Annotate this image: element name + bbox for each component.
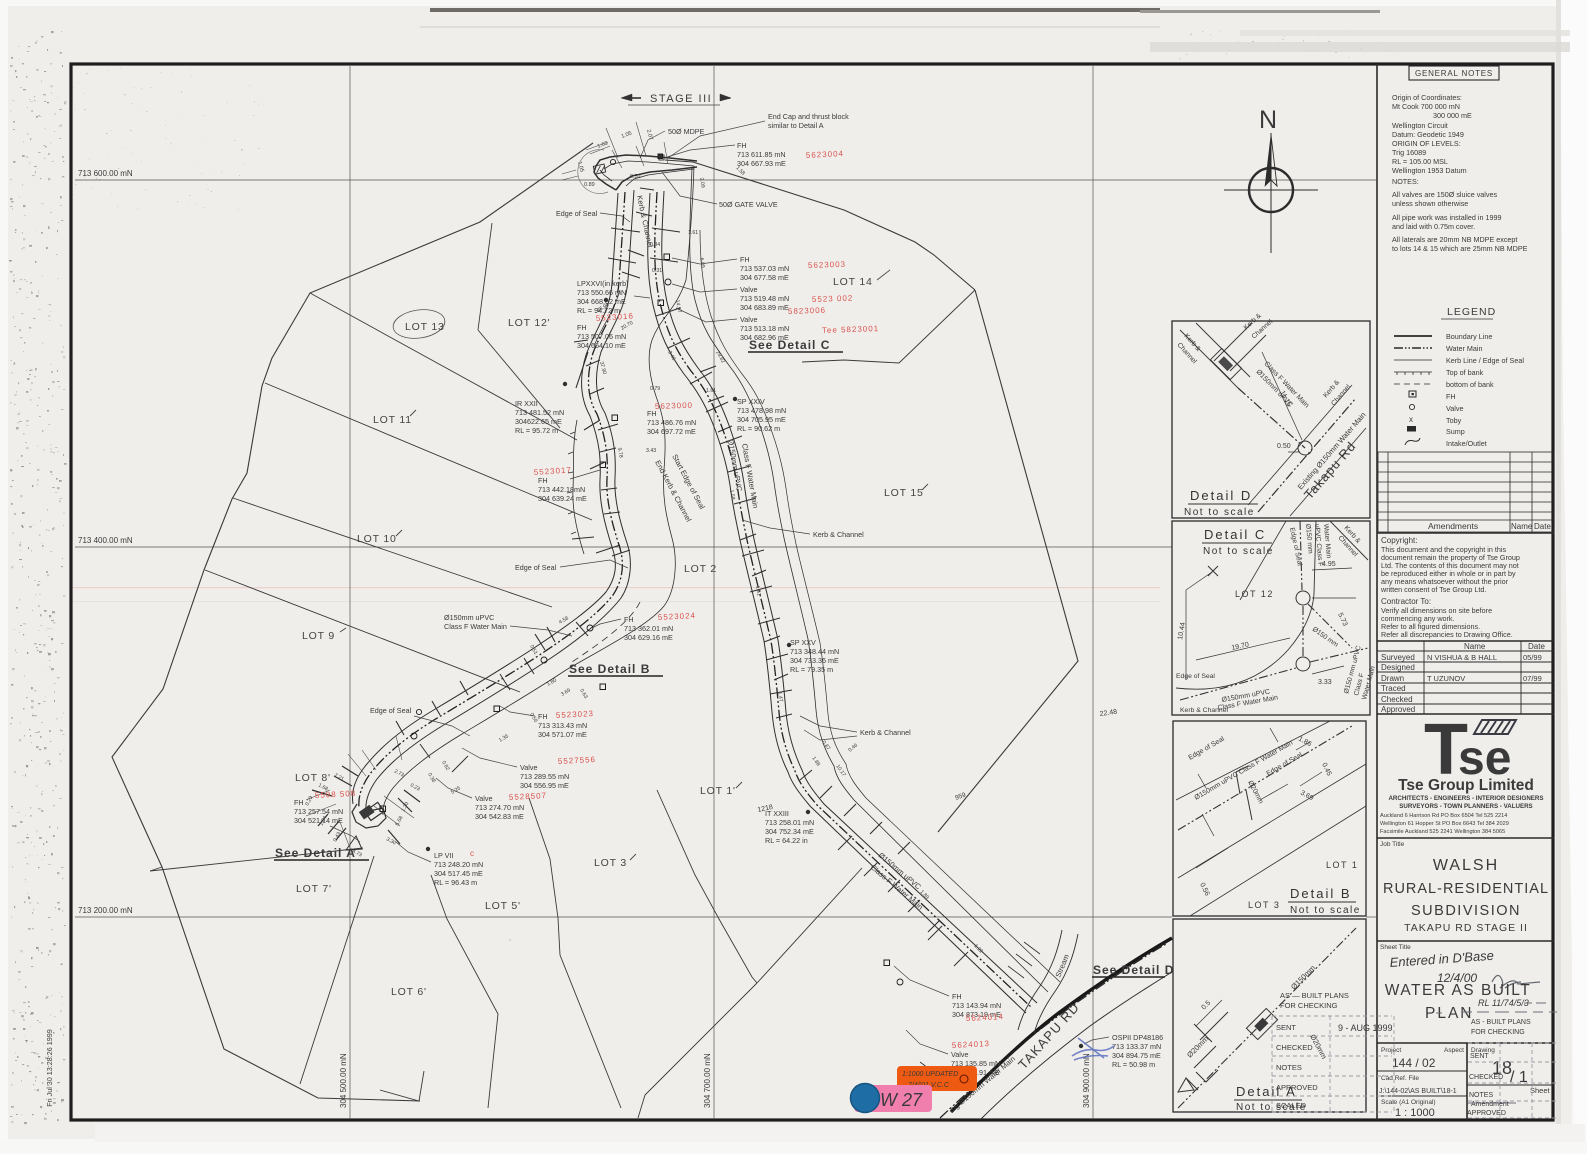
svg-text:SURVEYORS - TOWN PLANNERS -: SURVEYORS - TOWN PLANNERS - VALUERS (1399, 803, 1532, 810)
svg-text:304 733.36 mE: 304 733.36 mE (790, 656, 839, 665)
svg-text:and laid with 0.75m cover.: and laid with 0.75m cover. (1392, 222, 1475, 231)
svg-text:Project: Project (1381, 1047, 1401, 1054)
svg-text:FH: FH (737, 141, 747, 150)
svg-text:Not to scale: Not to scale (1290, 905, 1361, 916)
svg-text:LEGEND: LEGEND (1447, 306, 1496, 318)
svg-text:All pipe work was installed in: All pipe work was installed in 1999 (1392, 213, 1501, 222)
svg-text:Edge of Seal: Edge of Seal (370, 706, 412, 715)
svg-text:LOT 13: LOT 13 (405, 321, 445, 333)
svg-text:304 629.16 mE: 304 629.16 mE (624, 633, 673, 642)
svg-text:0.79: 0.79 (650, 386, 660, 392)
svg-text:Trig 16089: Trig 16089 (1392, 148, 1426, 157)
svg-text:FH: FH (624, 615, 634, 624)
svg-text:T UZUNOV: T UZUNOV (1427, 674, 1465, 683)
svg-text:Kerb & Channel: Kerb & Channel (860, 728, 911, 737)
svg-text:x: x (1409, 415, 1413, 424)
svg-text:IR XXII: IR XXII (515, 399, 538, 408)
svg-text:See Detail D: See Detail D (1093, 963, 1174, 977)
svg-text:Valve: Valve (740, 315, 757, 324)
svg-text:3.33: 3.33 (1318, 679, 1332, 686)
svg-text:713 486.76 mN: 713 486.76 mN (647, 418, 696, 427)
svg-text:SENT: SENT (1470, 1053, 1489, 1060)
svg-text:Detail B: Detail B (1290, 886, 1352, 901)
svg-text:3.43: 3.43 (646, 448, 656, 454)
svg-text:RL 11/74/5/3: RL 11/74/5/3 (1478, 998, 1529, 1008)
svg-text:713 442.18mN: 713 442.18mN (538, 485, 585, 494)
svg-text:Traced: Traced (1381, 684, 1406, 693)
svg-text:713 200.00 mN: 713 200.00 mN (78, 906, 133, 915)
svg-text:SCALED: SCALED (1276, 1101, 1307, 1110)
svg-text:AS — BUILT PLANS: AS — BUILT PLANS (1280, 991, 1349, 1000)
svg-text:RL = 50.98 m: RL = 50.98 m (1112, 1060, 1155, 1069)
svg-text:713 274.70 mN: 713 274.70 mN (475, 803, 524, 812)
svg-text:Aspect: Aspect (1444, 1047, 1464, 1054)
svg-text:ORIGIN OF LEVELS:: ORIGIN OF LEVELS: (1392, 139, 1461, 148)
svg-text:SUBDIVISION: SUBDIVISION (1411, 903, 1521, 919)
svg-text:Detail C: Detail C (1204, 527, 1266, 542)
svg-text:LOT 3: LOT 3 (1248, 900, 1280, 910)
svg-text:713 519.48 mN: 713 519.48 mN (740, 294, 789, 303)
svg-text:LOT 12': LOT 12' (508, 317, 550, 329)
svg-text:Copyright:: Copyright: (1381, 536, 1417, 545)
svg-text:Detail D: Detail D (1190, 488, 1252, 503)
svg-text:Fri Jul 30 13:28:26 1999: Fri Jul 30 13:28:26 1999 (45, 1029, 54, 1107)
svg-text:304622.65 mE: 304622.65 mE (515, 417, 562, 426)
svg-text:1.61: 1.61 (688, 230, 698, 236)
svg-text:Approved: Approved (1381, 705, 1415, 714)
svg-text:Ø150mm uPVC: Ø150mm uPVC (444, 613, 494, 622)
svg-text:FH: FH (294, 798, 304, 807)
svg-text:Toby: Toby (1446, 416, 1462, 425)
svg-text:304 521.14 mE: 304 521.14 mE (294, 816, 343, 825)
svg-text:1.61: 1.61 (706, 388, 716, 394)
svg-text:AS - BUILT PLANS: AS - BUILT PLANS (1471, 1019, 1531, 1026)
svg-text:Not to scale: Not to scale (1203, 546, 1274, 557)
svg-text:Name: Name (1511, 522, 1533, 531)
svg-text:304 700.00 mN: 304 700.00 mN (703, 1053, 712, 1108)
svg-text:FH: FH (577, 323, 587, 332)
svg-text:LOT 1': LOT 1' (700, 785, 736, 797)
svg-text:713 248.20 mN: 713 248.20 mN (434, 860, 483, 869)
svg-text:LOT 11: LOT 11 (373, 414, 412, 426)
svg-text:LOT 12: LOT 12 (1235, 589, 1274, 599)
svg-text:Contractor To:: Contractor To: (1381, 597, 1431, 606)
svg-text:GENERAL NOTES: GENERAL NOTES (1415, 69, 1493, 78)
svg-text:07/99: 07/99 (1523, 674, 1542, 683)
svg-text:304 683.89 mE: 304 683.89 mE (740, 303, 789, 312)
svg-text:ARCHITECTS - ENGINEERS - I: ARCHITECTS - ENGINEERS - INTERIOR DESIGN… (1388, 795, 1543, 802)
svg-text:5623000: 5623000 (655, 401, 693, 411)
svg-text:5623003: 5623003 (808, 260, 846, 270)
svg-text:Edge of Seal: Edge of Seal (556, 209, 598, 218)
svg-text:9 - AUG 1999: 9 - AUG 1999 (1338, 1023, 1393, 1033)
svg-text:304 894.75 mE: 304 894.75 mE (1112, 1051, 1161, 1060)
svg-text:0.89: 0.89 (584, 182, 595, 188)
svg-text:50Ø MDPE: 50Ø MDPE (668, 127, 705, 136)
svg-text:Mt Cook 700 000 mN: Mt Cook 700 000 mN (1392, 102, 1460, 111)
svg-text:RL = 79.35 m: RL = 79.35 m (790, 665, 833, 674)
svg-text:Refer all discrepancies to Dra: Refer all discrepancies to Drawing Offic… (1381, 630, 1513, 639)
svg-text:SP XXV: SP XXV (790, 638, 816, 647)
svg-text:1 : 1000: 1 : 1000 (1395, 1107, 1435, 1119)
svg-text:Amendments: Amendments (1428, 521, 1478, 531)
svg-text:See Detail B: See Detail B (569, 662, 650, 676)
svg-text:Origin of Coordinates:: Origin of Coordinates: (1392, 93, 1462, 102)
svg-text:713 362.01 mN: 713 362.01 mN (624, 624, 673, 633)
svg-text:Not to scale: Not to scale (1184, 507, 1255, 518)
svg-text:Edge of Seal: Edge of Seal (515, 563, 557, 572)
svg-text:SP XXIV: SP XXIV (737, 397, 765, 406)
svg-text:Edge of Seal: Edge of Seal (1176, 673, 1215, 680)
svg-text:FH: FH (740, 255, 750, 264)
svg-text:LOT 6': LOT 6' (391, 986, 427, 998)
svg-text:50Ø GATE VALVE: 50Ø GATE VALVE (719, 200, 778, 209)
svg-text:304 900.00 mN: 304 900.00 mN (1082, 1053, 1091, 1108)
svg-text:304 500.00 mN: 304 500.00 mN (339, 1053, 348, 1108)
svg-text:Tse Group Limited: Tse Group Limited (1398, 777, 1534, 794)
svg-text:0.52: 0.52 (630, 174, 641, 180)
svg-text:N VISHUA & B HALL: N VISHUA & B HALL (1427, 653, 1497, 662)
svg-text:LOT 14: LOT 14 (833, 276, 873, 288)
svg-text:304 664.10 mE: 304 664.10 mE (577, 341, 626, 350)
svg-text:Facsimile Auckland 525 22: Facsimile Auckland 525 2241 Wellington 3… (1380, 829, 1505, 835)
svg-text:Wellington 61 Hopper St: Wellington 61 Hopper St PO Box 6643 Tel … (1380, 821, 1509, 827)
svg-text:Valve: Valve (951, 1050, 968, 1059)
svg-text:Valve: Valve (475, 794, 492, 803)
svg-text:RURAL-RESIDENTIAL: RURAL-RESIDENTIAL (1383, 881, 1549, 897)
svg-text:NOTES: NOTES (1276, 1063, 1302, 1072)
svg-text:WALSH: WALSH (1433, 857, 1499, 874)
svg-text:Top of bank: Top of bank (1446, 368, 1484, 377)
svg-text:APPROVED: APPROVED (1276, 1083, 1318, 1092)
svg-text:713 289.55 mN: 713 289.55 mN (520, 772, 569, 781)
svg-text:FH: FH (538, 476, 548, 485)
svg-text:1:1000 UPDATED: 1:1000 UPDATED (902, 1071, 958, 1078)
svg-text:Job Title: Job Title (1380, 841, 1405, 848)
svg-text:similar to Detail A: similar to Detail A (768, 121, 824, 130)
svg-text:RL = 95.72 m: RL = 95.72 m (515, 426, 558, 435)
svg-text:Datum: Geodetic 1949: Datum: Geodetic 1949 (1392, 130, 1464, 139)
svg-text:Sheet: Sheet (1530, 1086, 1551, 1095)
svg-text:300 000 mE: 300 000 mE (1433, 111, 1472, 120)
svg-text:304 556.95 mE: 304 556.95 mE (520, 781, 569, 790)
svg-text:713 143.94 mN: 713 143.94 mN (952, 1001, 1001, 1010)
svg-text:W 27: W 27 (880, 1090, 923, 1110)
svg-text:LPXXVI(in kerb): LPXXVI(in kerb) (577, 279, 629, 288)
svg-text:Amendment: Amendment (1471, 1101, 1509, 1108)
svg-text:LOT 15: LOT 15 (884, 487, 924, 499)
svg-text:713 550.66 mN: 713 550.66 mN (577, 288, 626, 297)
svg-text:304 677.58 mE: 304 677.58 mE (740, 273, 789, 282)
svg-text:bottom of bank: bottom of bank (1446, 380, 1494, 389)
svg-text:Drawn: Drawn (1381, 674, 1404, 683)
svg-text:FOR CHECKING: FOR CHECKING (1280, 1001, 1338, 1010)
svg-text:Date: Date (1534, 522, 1551, 531)
svg-text:Intake/Outlet: Intake/Outlet (1446, 439, 1487, 448)
svg-text:Checked: Checked (1381, 695, 1413, 704)
svg-text:Water Main: Water Main (1446, 344, 1482, 353)
svg-text:All valves are 150Ø sluice val: All valves are 150Ø sluice valves (1392, 190, 1497, 199)
svg-text:End Cap and thrust block: End Cap and thrust block (768, 112, 849, 121)
svg-text:unless shown otherwise: unless shown otherwise (1392, 199, 1468, 208)
svg-text:J:\144-02\AS BUILT\18-1: J:\144-02\AS BUILT\18-1 (1379, 1088, 1457, 1095)
svg-text:304 667.93 mE: 304 667.93 mE (737, 159, 786, 168)
svg-text:Name: Name (1464, 642, 1486, 651)
svg-text:5823006: 5823006 (788, 306, 826, 316)
svg-text:304 542.83 mE: 304 542.83 mE (475, 812, 524, 821)
svg-text:304 682.96 mE: 304 682.96 mE (740, 333, 789, 342)
svg-text:PLAN: PLAN (1425, 1005, 1474, 1022)
svg-text:Kerb & Channel: Kerb & Channel (1180, 707, 1228, 714)
svg-text:Date: Date (1528, 642, 1545, 651)
svg-text:Auckland 6 Harrison Rd: Auckland 6 Harrison Rd PO Box 6504 Tel 5… (1380, 813, 1507, 819)
svg-text:LOT 8': LOT 8' (295, 772, 331, 784)
svg-text:304 752.34 mE: 304 752.34 mE (765, 827, 814, 836)
svg-text:LOT 1: LOT 1 (1326, 860, 1358, 870)
svg-text:RL = 105.00 MSL: RL = 105.00 MSL (1392, 157, 1448, 166)
svg-text:LOT 5': LOT 5' (485, 900, 521, 912)
svg-text:LOT 2: LOT 2 (684, 563, 717, 575)
svg-text:Kerb & Channel: Kerb & Channel (813, 530, 864, 539)
svg-text:304 571.07 mE: 304 571.07 mE (538, 730, 587, 739)
svg-text:Designed: Designed (1381, 663, 1415, 672)
svg-text:Sheet Title: Sheet Title (1380, 944, 1411, 951)
svg-text:713 133.37 mN: 713 133.37 mN (1112, 1042, 1161, 1051)
svg-text:304 697.72 mE: 304 697.72 mE (647, 427, 696, 436)
svg-text:N: N (1259, 106, 1277, 134)
svg-text:5523 002: 5523 002 (812, 294, 854, 304)
svg-text:05/99: 05/99 (1523, 653, 1542, 662)
svg-text:713 513.18 mN: 713 513.18 mN (740, 324, 789, 333)
svg-text:Surveyed: Surveyed (1381, 653, 1415, 662)
svg-text:713 600.00 mN: 713 600.00 mN (78, 169, 133, 178)
svg-text:LOT 7': LOT 7' (296, 883, 332, 895)
svg-text:APPROVED: APPROVED (1467, 1110, 1506, 1117)
svg-text:713 313.43 mN: 713 313.43 mN (538, 721, 587, 730)
svg-text:NOTES: NOTES (1469, 1092, 1493, 1099)
svg-text:NOTES:: NOTES: (1392, 177, 1419, 186)
svg-text:Sump: Sump (1446, 427, 1465, 436)
svg-text:RL = 96.43 m: RL = 96.43 m (434, 878, 477, 887)
svg-text:WATER AS BUILT: WATER AS BUILT (1385, 982, 1531, 999)
svg-text:CHECKED: CHECKED (1276, 1043, 1313, 1052)
svg-text:FOR CHECKING: FOR CHECKING (1471, 1029, 1525, 1036)
svg-text:713 400.00 mN: 713 400.00 mN (78, 536, 133, 545)
svg-text:LOT 3: LOT 3 (594, 857, 627, 869)
svg-text:144 / 02: 144 / 02 (1392, 1056, 1436, 1070)
svg-text:RL = 64.22 in: RL = 64.22 in (765, 836, 808, 845)
svg-text:FH: FH (952, 992, 962, 1001)
svg-text:SENT: SENT (1276, 1023, 1296, 1032)
svg-text:Wellington 1953 Datum: Wellington 1953 Datum (1392, 166, 1467, 175)
svg-text:FH: FH (1446, 392, 1456, 401)
svg-text:Kerb Line / Edge of Seal: Kerb Line / Edge of Seal (1446, 356, 1524, 365)
svg-text:304 705.95 mE: 304 705.95 mE (737, 415, 786, 424)
svg-text:713 481.52 mN: 713 481.52 mN (515, 408, 564, 417)
svg-text:0.50: 0.50 (1277, 443, 1291, 450)
svg-text:713 257.54 mN: 713 257.54 mN (294, 807, 343, 816)
svg-text:Scale (A1 Original): Scale (A1 Original) (1381, 1099, 1436, 1106)
svg-text:OSPII DP48186: OSPII DP48186 (1112, 1033, 1163, 1042)
svg-text:STAGE III: STAGE III (650, 93, 712, 105)
svg-text:LOT 10: LOT 10 (357, 533, 397, 545)
svg-text:713 348.44 mN: 713 348.44 mN (790, 647, 839, 656)
svg-text:CHECKED: CHECKED (1469, 1074, 1503, 1081)
svg-text:Boundary Line: Boundary Line (1446, 332, 1492, 341)
svg-text:LOT 9: LOT 9 (302, 630, 335, 642)
svg-text:Valve: Valve (740, 285, 757, 294)
svg-text:RL = 90.62 m: RL = 90.62 m (737, 424, 780, 433)
svg-text:Valve: Valve (520, 763, 537, 772)
svg-text:304 517.45 mE: 304 517.45 mE (434, 869, 483, 878)
svg-text:713 258.01 mN: 713 258.01 mN (765, 818, 814, 827)
svg-text:to lots 14 & 15 which are 25mm: to lots 14 & 15 which are 25mm NB MDPE (1392, 244, 1528, 253)
svg-text:713 611.85 mN: 713 611.85 mN (737, 150, 786, 159)
svg-text:All laterals are 20mm NB MDPE: All laterals are 20mm NB MDPE except (1392, 235, 1517, 244)
svg-text:TAKAPU RD STAGE II: TAKAPU RD STAGE II (1404, 922, 1528, 934)
svg-text:c: c (470, 849, 475, 858)
svg-text:0.84: 0.84 (650, 242, 660, 248)
svg-text:304 639.24 mE: 304 639.24 mE (538, 494, 587, 503)
svg-text:713 507.06 mN: 713 507.06 mN (577, 332, 626, 341)
svg-text:713 537.03 mN: 713 537.03 mN (740, 264, 789, 273)
svg-text:LP VII: LP VII (434, 851, 453, 860)
svg-text:Valve: Valve (1446, 404, 1463, 413)
svg-text:0.31: 0.31 (652, 268, 662, 274)
svg-text:written consent of Tse Group L: written consent of Tse Group Ltd. (1380, 585, 1486, 594)
svg-text:Class F Water Main: Class F Water Main (444, 622, 507, 631)
svg-text:Wellington Circuit: Wellington Circuit (1392, 121, 1448, 130)
svg-text:See Detail A: See Detail A (275, 846, 356, 860)
svg-text:713 478.98 mN: 713 478.98 mN (737, 406, 786, 415)
svg-text:FH: FH (538, 712, 548, 721)
